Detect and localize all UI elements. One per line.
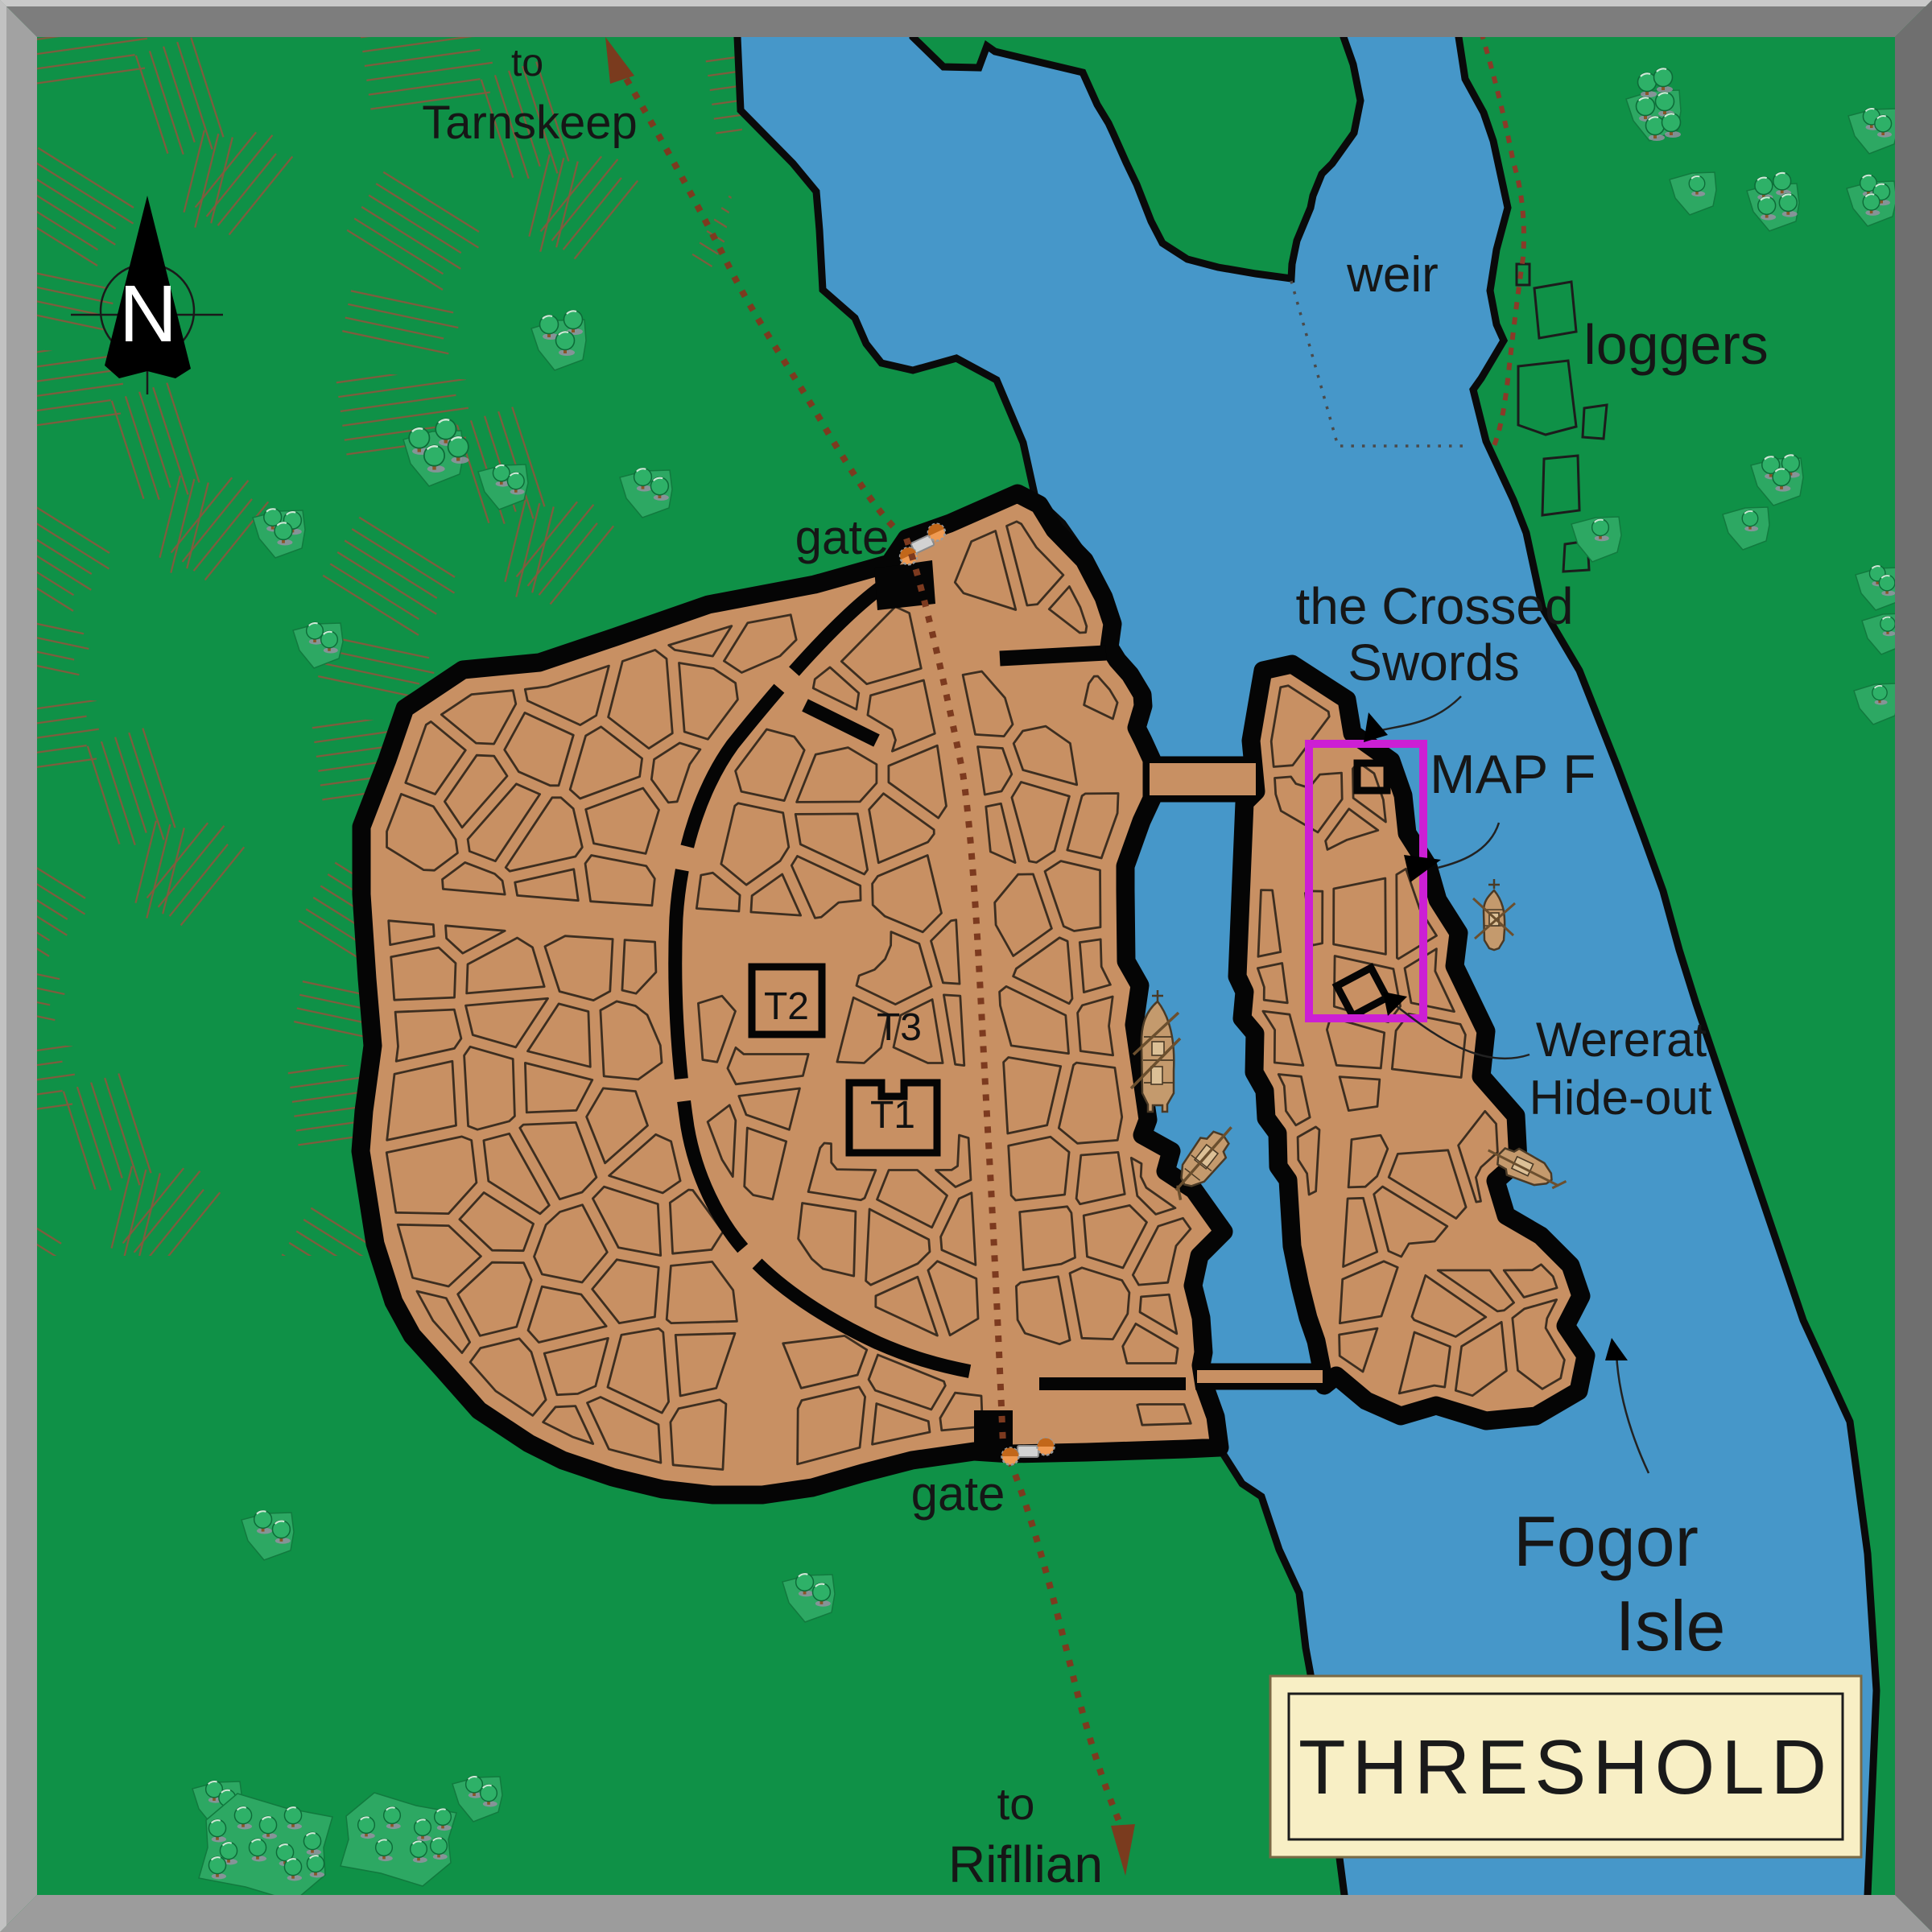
svg-text:gate: gate bbox=[795, 510, 890, 564]
svg-text:loggers: loggers bbox=[1583, 313, 1769, 376]
svg-text:the Crossed: the Crossed bbox=[1295, 577, 1573, 635]
svg-text:MAP F: MAP F bbox=[1430, 744, 1596, 805]
svg-text:THRESHOLD: THRESHOLD bbox=[1298, 1724, 1833, 1810]
svg-text:Isle: Isle bbox=[1616, 1586, 1726, 1666]
svg-text:Swords: Swords bbox=[1348, 634, 1519, 691]
svg-text:Hide-out: Hide-out bbox=[1529, 1071, 1712, 1125]
svg-text:T2: T2 bbox=[764, 985, 809, 1028]
svg-text:Wererat: Wererat bbox=[1536, 1013, 1707, 1067]
svg-text:gate: gate bbox=[911, 1467, 1005, 1521]
svg-text:Tarnskeep: Tarnskeep bbox=[422, 97, 638, 149]
svg-text:to: to bbox=[997, 1778, 1035, 1829]
svg-text:weir: weir bbox=[1346, 247, 1439, 303]
svg-text:to: to bbox=[511, 42, 543, 85]
svg-text:N: N bbox=[119, 269, 177, 359]
svg-text:T3: T3 bbox=[877, 1006, 922, 1049]
svg-text:Rifllian: Rifllian bbox=[948, 1835, 1103, 1893]
svg-text:Fogor: Fogor bbox=[1513, 1501, 1699, 1581]
svg-text:T1: T1 bbox=[870, 1094, 915, 1137]
